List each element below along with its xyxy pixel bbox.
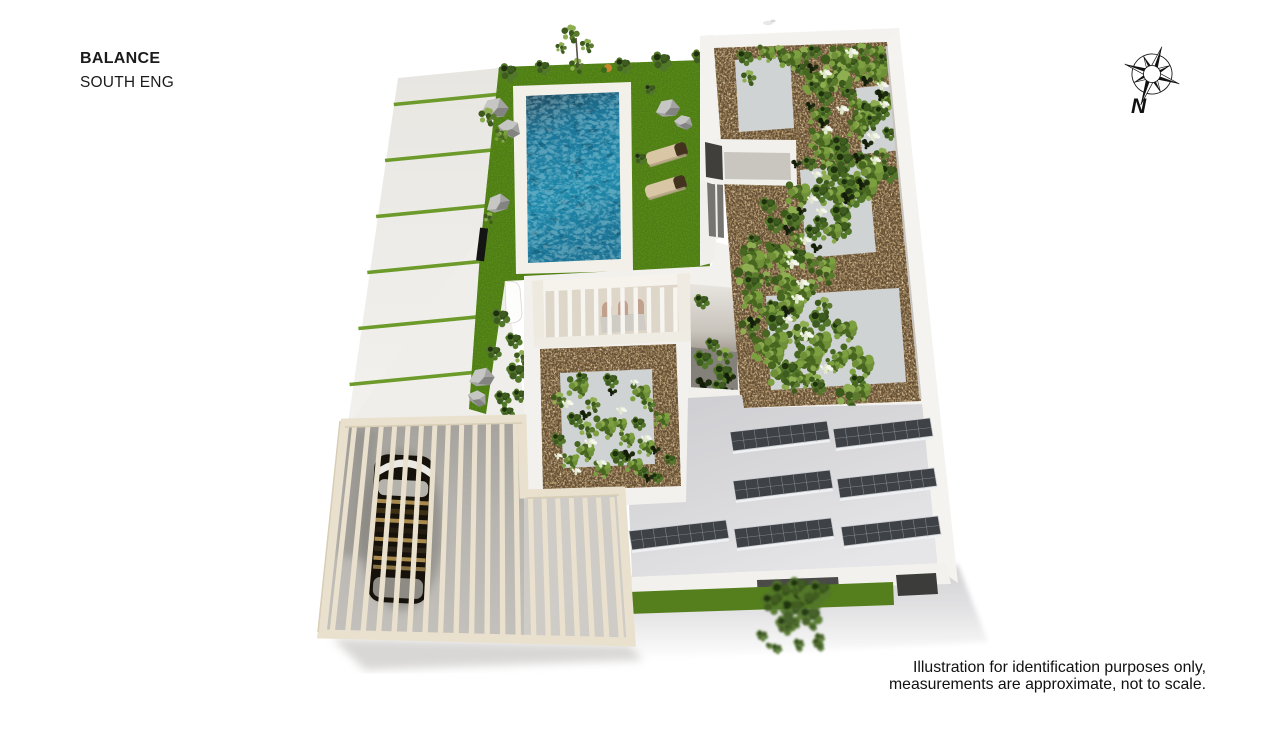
svg-text:BALANCE: BALANCE <box>80 50 160 67</box>
svg-text:measurements are approximate,: measurements are approximate, not to sca… <box>889 676 1206 693</box>
svg-text:N: N <box>1131 95 1147 118</box>
svg-text:Illustration for identificatio: Illustration for identification purposes… <box>913 659 1206 676</box>
svg-text:SOUTH ENG: SOUTH ENG <box>80 74 174 91</box>
